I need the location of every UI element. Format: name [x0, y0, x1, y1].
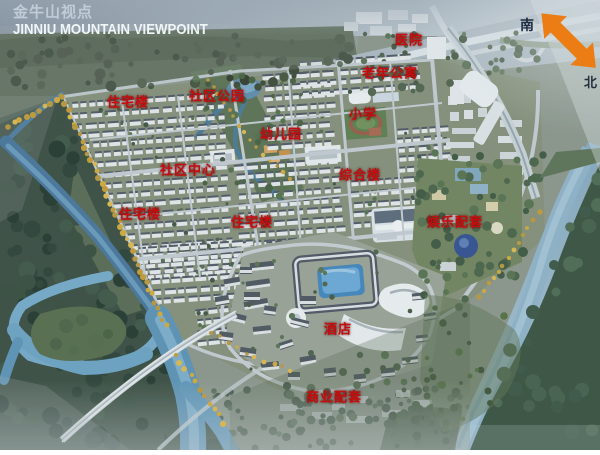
svg-text:南: 南 — [520, 17, 534, 33]
svg-text:北: 北 — [584, 75, 597, 90]
